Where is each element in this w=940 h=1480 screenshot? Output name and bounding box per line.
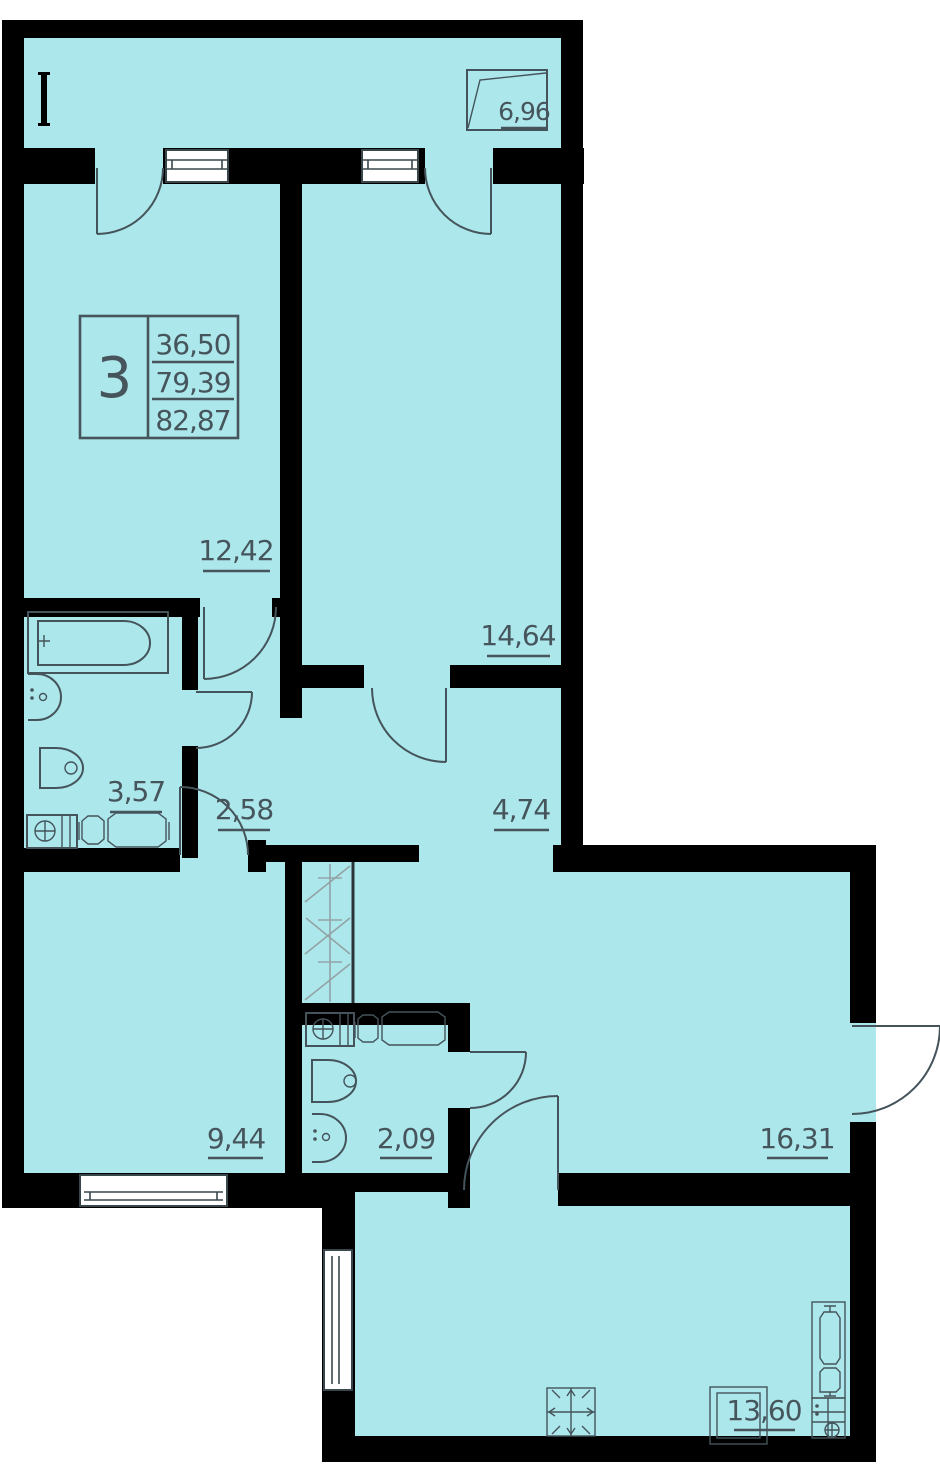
wall-under-bedroom2-a (302, 665, 364, 688)
wall-wc-right-b (448, 1108, 470, 1208)
label-bedroom3-area: 9,44 (207, 1122, 266, 1155)
wall-corner-piece (248, 840, 266, 872)
wall-shaft-left (285, 848, 302, 1208)
wall-bath-right-b (182, 746, 198, 858)
wall-wc-bottom (285, 1173, 470, 1192)
wall-living-top (553, 845, 876, 872)
wall-under-bedroom2-b (450, 665, 564, 688)
label-balcony-area: 6,96 (498, 97, 550, 126)
label-bathroom-area: 3,57 (107, 775, 165, 808)
floor-plan-svg: 3 36,50 79,39 82,87 6,96 12,42 14,64 3,5… (0, 0, 940, 1480)
label-wc-area: 2,09 (377, 1122, 435, 1155)
window-balcony-left-icon (166, 150, 228, 182)
wall-top (2, 20, 583, 38)
wall-under-bedroom1-a (2, 598, 200, 617)
wall-kitchen-top (558, 1173, 876, 1206)
label-living-area: 16,31 (759, 1122, 834, 1155)
wall-bath-bottom (2, 848, 180, 872)
legend-living-area: 36,50 (155, 328, 230, 361)
window-kitchen-icon (324, 1250, 352, 1390)
apartment-floor (2, 20, 876, 1462)
wall-right-lower-a (850, 872, 876, 1023)
label-corridor-area: 2,58 (215, 793, 273, 826)
label-kitchen-area: 13,60 (726, 1394, 801, 1427)
wall-wc-right-a (448, 1003, 470, 1052)
label-bedroom2-area: 14,64 (480, 619, 555, 652)
window-balcony-right-icon (362, 150, 418, 182)
legend-floor-area: 79,39 (155, 366, 230, 399)
wall-right-upper (561, 20, 583, 872)
wall-room-divider (280, 148, 302, 718)
wall-bottom (322, 1436, 876, 1462)
wall-bath-right-a (182, 617, 198, 690)
wall-balcony-a (2, 148, 95, 184)
floor-plan: 3 36,50 79,39 82,87 6,96 12,42 14,64 3,5… (0, 0, 940, 1480)
window-bedroom-bottom-icon (80, 1175, 227, 1206)
legend-room-count: 3 (97, 346, 132, 411)
legend-total-area: 82,87 (155, 404, 230, 437)
wall-balcony-c (493, 148, 584, 184)
label-bedroom1-area: 12,42 (198, 534, 273, 567)
label-hallway-area: 4,74 (492, 793, 551, 826)
